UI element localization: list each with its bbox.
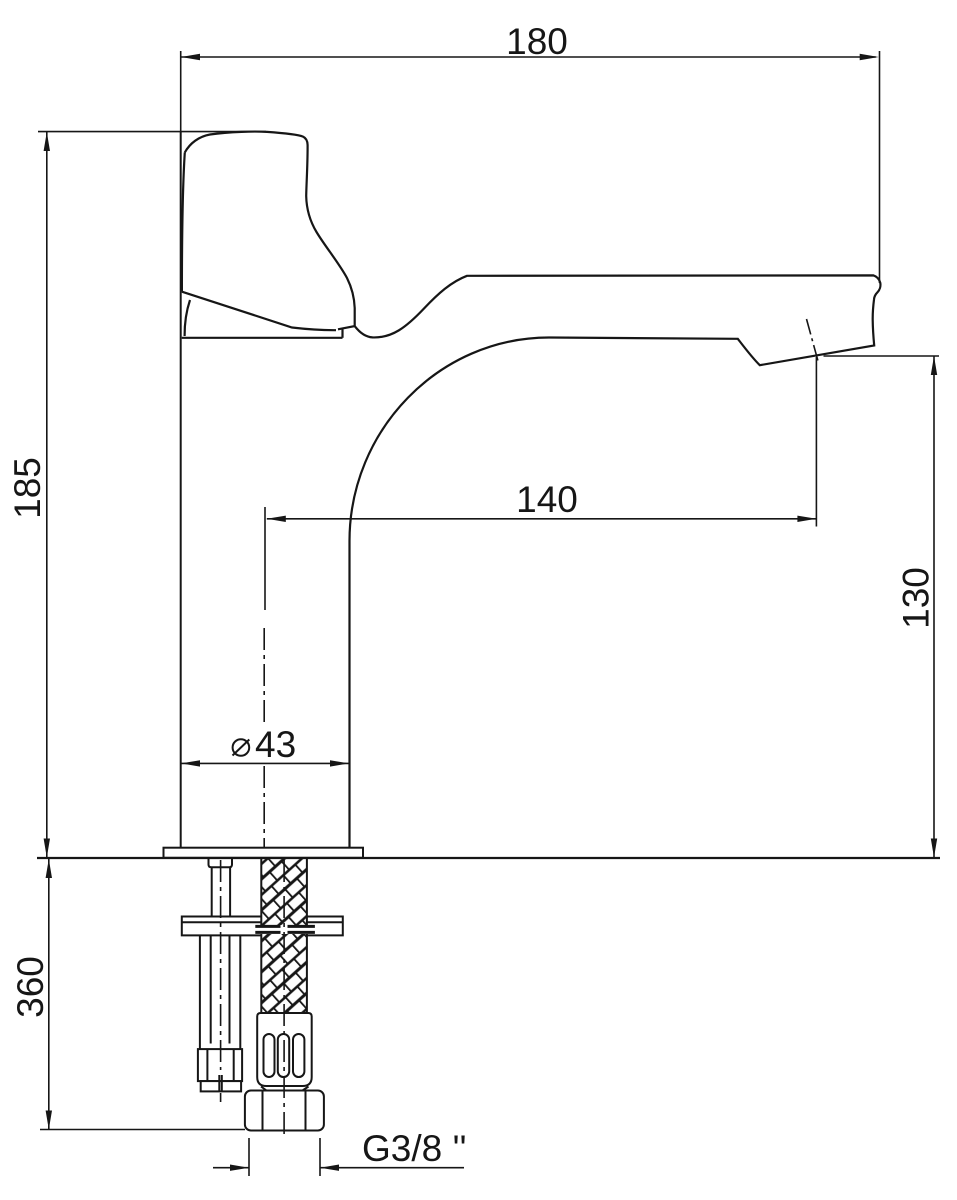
svg-text:140: 140 xyxy=(516,479,578,520)
svg-text:180: 180 xyxy=(506,21,568,62)
svg-text:G3/8 '': G3/8 '' xyxy=(362,1128,467,1169)
svg-text:130: 130 xyxy=(896,567,937,629)
svg-text:185: 185 xyxy=(7,457,48,519)
svg-text:43: 43 xyxy=(255,724,296,765)
svg-text:360: 360 xyxy=(10,956,51,1018)
